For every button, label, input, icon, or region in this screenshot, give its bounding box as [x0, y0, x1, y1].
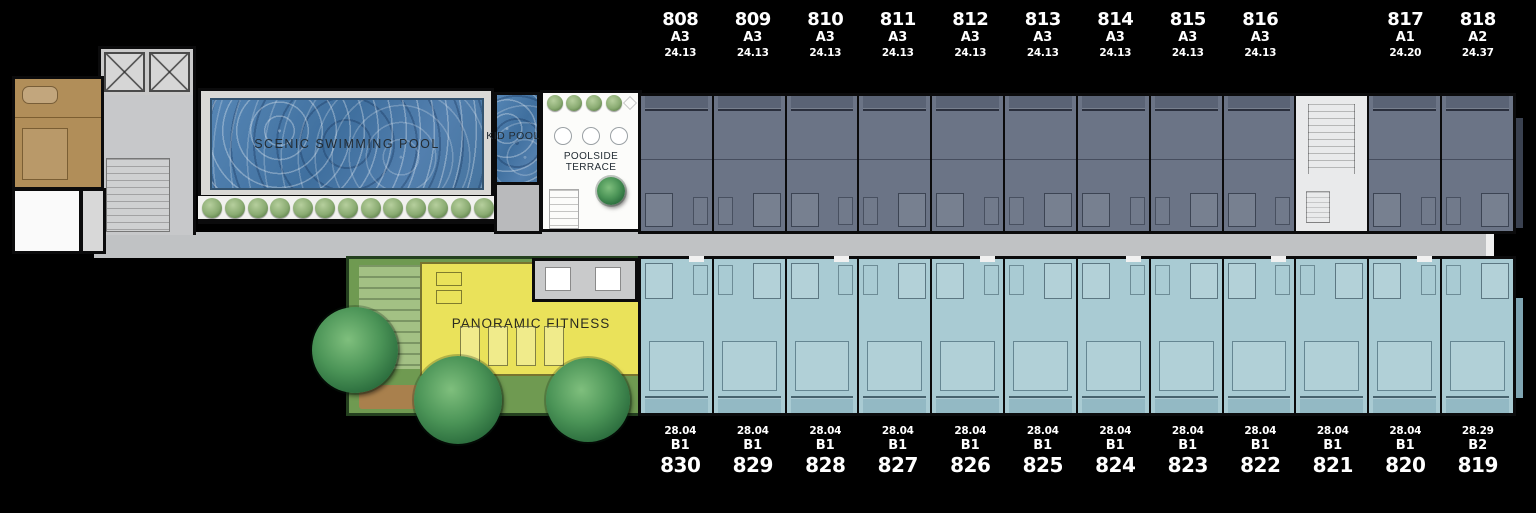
unit-number: 820 [1385, 454, 1425, 476]
shaft-void [12, 188, 82, 254]
lounge-chair-icon [623, 96, 637, 110]
unit-number: 823 [1168, 454, 1208, 476]
unit-number: 830 [660, 454, 700, 476]
unit-type: A3 [961, 30, 980, 46]
unit-number: 810 [807, 10, 843, 30]
unit-813[interactable] [1005, 96, 1076, 231]
unit-type: B1 [1178, 438, 1197, 454]
unit-label-809: 809A324.13 [717, 10, 790, 74]
shrub-icon [315, 198, 335, 218]
door [1126, 256, 1141, 262]
unit-number: 819 [1458, 454, 1498, 476]
bed-icon [22, 128, 68, 180]
unit-824[interactable] [1078, 259, 1149, 413]
bed-icon [1159, 341, 1214, 391]
unit-area: 28.04 [1027, 424, 1059, 438]
unit-label-822: 28.04B1822 [1224, 424, 1297, 486]
balcony [791, 96, 854, 111]
terrace-tables [549, 127, 633, 145]
unit-label-811: 811A324.13 [862, 10, 935, 74]
unit-811[interactable] [859, 96, 930, 231]
unit-814[interactable] [1078, 96, 1149, 231]
wall-line [641, 159, 712, 160]
balcony [1155, 396, 1218, 413]
balcony [1009, 96, 1072, 111]
stair-core [1296, 96, 1367, 231]
unit-number: 821 [1313, 454, 1353, 476]
unit-area: 28.04 [882, 424, 914, 438]
wall-line [932, 159, 1003, 160]
unit-area: 24.13 [664, 46, 696, 60]
unit-type: A3 [816, 30, 835, 46]
unit-label-815: 815A324.13 [1152, 10, 1225, 74]
service-vestibule [532, 258, 638, 302]
unit-820[interactable] [1369, 259, 1440, 413]
unit-type: A3 [743, 30, 762, 46]
hedge-row [545, 94, 637, 112]
shrub-icon [606, 95, 622, 111]
unit-type: B1 [1396, 438, 1415, 454]
unit-label-824: 28.04B1824 [1079, 424, 1152, 486]
bed-icon [1377, 341, 1432, 391]
unit-labels-bottom: 28.04B1830 28.04B1829 28.04B1828 28.04B1… [644, 424, 1514, 486]
shrub-icon [202, 198, 222, 218]
unit-area: 24.13 [809, 46, 841, 60]
tree-icon [546, 358, 630, 442]
balcony [1373, 96, 1436, 111]
bed-icon [1232, 341, 1287, 391]
unit-815[interactable] [1151, 96, 1222, 231]
unit-label-830: 28.04B1830 [644, 424, 717, 486]
treadmill-icon [544, 326, 564, 366]
tree-icon [414, 356, 502, 444]
unit-type: B1 [1106, 438, 1125, 454]
unit-type: B1 [1033, 438, 1052, 454]
shrub-icon [293, 198, 313, 218]
unit-area: 24.13 [1027, 46, 1059, 60]
unit-828[interactable] [787, 259, 858, 413]
unit-label-814: 814A324.13 [1079, 10, 1152, 74]
shrub-icon [225, 198, 245, 218]
balcony [936, 396, 999, 413]
exercise-bike-icon [436, 272, 462, 286]
unit-row-top [638, 93, 1516, 234]
unit-number: 816 [1242, 10, 1278, 30]
door [980, 256, 995, 262]
table-icon [554, 127, 572, 145]
bed-icon [722, 341, 777, 391]
unit-area: 24.13 [954, 46, 986, 60]
unit-area: 24.13 [737, 46, 769, 60]
balcony [791, 396, 854, 413]
unit-label-817: 817A124.20 [1369, 10, 1442, 74]
unit-type: A3 [1251, 30, 1270, 46]
unit-type: B1 [1251, 438, 1270, 454]
bed-icon [1304, 341, 1359, 391]
balcony [1446, 96, 1509, 111]
unit-type: A2 [1468, 30, 1487, 46]
door [1417, 256, 1432, 262]
unit-number: 811 [880, 10, 916, 30]
wall-line [787, 159, 858, 160]
table-icon [610, 127, 628, 145]
unit-type: B1 [1323, 438, 1342, 454]
elevator-shaft-icon [104, 52, 145, 92]
unit-817[interactable] [1369, 96, 1440, 231]
unit-830[interactable] [641, 259, 712, 413]
unit-number: 813 [1025, 10, 1061, 30]
unit-area: 28.04 [809, 424, 841, 438]
elevator-shaft-icon [149, 52, 190, 92]
wall-line [1224, 159, 1295, 160]
unit-label-828: 28.04B1828 [789, 424, 862, 486]
balcony [936, 96, 999, 111]
unit-label-813: 813A324.13 [1007, 10, 1080, 74]
unit-area: 28.04 [1317, 424, 1349, 438]
unit-type: A3 [1178, 30, 1197, 46]
unit-label-808: 808A324.13 [644, 10, 717, 74]
unit-816[interactable] [1224, 96, 1295, 231]
wall-line [714, 159, 785, 160]
pool-plant-room [494, 182, 542, 234]
corridor-end-door [1486, 234, 1494, 256]
poolside-terrace: POOLSIDE TERRACE [540, 90, 642, 232]
unit-825[interactable] [1005, 259, 1076, 413]
unit-number: 817 [1387, 10, 1423, 30]
bed-icon [1013, 341, 1068, 391]
door [689, 256, 704, 262]
unit-label-819: 28.29B2819 [1442, 424, 1515, 486]
unit-number: 829 [733, 454, 773, 476]
unit-818[interactable] [1442, 96, 1513, 231]
unit-area: 28.04 [1389, 424, 1421, 438]
unit-823[interactable] [1151, 259, 1222, 413]
unit-819[interactable] [1442, 259, 1513, 413]
restroom-pod [545, 267, 571, 291]
balcony [1082, 396, 1145, 413]
swimming-pool: SCENIC SWIMMING POOL [210, 98, 484, 190]
unit-label-821: 28.04B1821 [1297, 424, 1370, 486]
floor-plan-stage: SCENIC SWIMMING POOL KID POOL POOLS [0, 0, 1536, 513]
unit-810[interactable] [787, 96, 858, 231]
unit-label-826: 28.04B1826 [934, 424, 1007, 486]
swimming-pool-label: SCENIC SWIMMING POOL [254, 137, 440, 151]
stair-lobby [106, 158, 170, 232]
wall-line [859, 159, 930, 160]
kid-pool [494, 92, 540, 194]
balcony [718, 396, 781, 413]
unit-area: 28.04 [954, 424, 986, 438]
unit-label-816: 816A324.13 [1224, 10, 1297, 74]
treadmill-icon [516, 326, 536, 366]
wall-line [1151, 159, 1222, 160]
stair-core-spacer [1297, 10, 1370, 74]
unit-type: B1 [888, 438, 907, 454]
wall-line [1005, 159, 1076, 160]
unit-area: 28.04 [1099, 424, 1131, 438]
balcony [1446, 396, 1509, 413]
unit-area: 24.20 [1389, 46, 1421, 60]
shrub-icon [406, 198, 426, 218]
unit-row-bottom [638, 256, 1516, 416]
shrub-icon [451, 198, 471, 218]
bed-icon [1450, 341, 1505, 391]
exercise-bike-icon [436, 290, 462, 304]
shrub-icon [547, 95, 563, 111]
unit-number: 828 [805, 454, 845, 476]
unit-number: 809 [735, 10, 771, 30]
unit-area: 24.37 [1462, 46, 1494, 60]
unit-822[interactable] [1224, 259, 1295, 413]
unit-number: 827 [878, 454, 918, 476]
balcony [645, 396, 708, 413]
unit-type: A3 [1033, 30, 1052, 46]
unit-label-827: 28.04B1827 [862, 424, 935, 486]
balcony [1009, 396, 1072, 413]
wall-line [1442, 159, 1513, 160]
balcony [863, 96, 926, 111]
unit-type: A3 [1106, 30, 1125, 46]
unit-area: 28.04 [1172, 424, 1204, 438]
unit-type: A1 [1396, 30, 1415, 46]
shrub-icon [428, 198, 448, 218]
unit-type: B1 [743, 438, 762, 454]
unit-type: B2 [1468, 438, 1487, 454]
balcony-tab-bottom [1516, 298, 1523, 398]
wall-line [15, 117, 101, 118]
unit-type: B1 [671, 438, 690, 454]
unit-area: 28.04 [664, 424, 696, 438]
unit-type: A3 [671, 30, 690, 46]
door [834, 256, 849, 262]
wall-line [1078, 159, 1149, 160]
unit-labels-top: 808A324.13 809A324.13 810A324.13 811A324… [644, 10, 1514, 74]
bed-icon [867, 341, 922, 391]
unit-area: 24.13 [1244, 46, 1276, 60]
stair-landing [1306, 191, 1330, 223]
unit-number: 814 [1097, 10, 1133, 30]
balcony [1373, 396, 1436, 413]
unit-827[interactable] [859, 259, 930, 413]
balcony [645, 96, 708, 111]
bed-icon [795, 341, 850, 391]
balcony [1228, 396, 1291, 413]
unit-number: 822 [1240, 454, 1280, 476]
door [1271, 256, 1286, 262]
table-icon [582, 127, 600, 145]
unit-label-812: 812A324.13 [934, 10, 1007, 74]
tree-icon [312, 307, 398, 393]
hedge-row [198, 196, 498, 224]
balcony [718, 96, 781, 111]
balcony [863, 396, 926, 413]
restroom-pod [595, 267, 621, 291]
bed-icon [649, 341, 704, 391]
balcony [1300, 396, 1363, 413]
shrub-icon [248, 198, 268, 218]
unit-number: 826 [950, 454, 990, 476]
unit-812[interactable] [932, 96, 1003, 231]
treadmill-icon [488, 326, 508, 366]
shrub-icon [361, 198, 381, 218]
bed-icon [1086, 341, 1141, 391]
shrub-icon [338, 198, 358, 218]
bed-icon [940, 341, 995, 391]
unit-number: 825 [1023, 454, 1063, 476]
unit-label-825: 28.04B1825 [1007, 424, 1080, 486]
shrub-icon [474, 198, 494, 218]
balcony [1155, 96, 1218, 111]
wall-line [1369, 159, 1440, 160]
balcony [1228, 96, 1291, 111]
terrace-steps [549, 189, 579, 229]
stair-flight [1308, 104, 1355, 174]
bathtub-icon [22, 86, 58, 104]
unit-829[interactable] [714, 259, 785, 413]
unit-809[interactable] [714, 96, 785, 231]
elevator-bank [98, 46, 196, 98]
unit-number: 815 [1170, 10, 1206, 30]
large-unit[interactable] [12, 76, 104, 190]
unit-area: 28.04 [737, 424, 769, 438]
unit-808[interactable] [641, 96, 712, 231]
unit-number: 812 [952, 10, 988, 30]
balcony-tab-top [1516, 118, 1523, 228]
unit-label-810: 810A324.13 [789, 10, 862, 74]
shrub-icon [270, 198, 290, 218]
unit-area: 24.13 [882, 46, 914, 60]
unit-area: 28.29 [1462, 424, 1494, 438]
unit-label-818: 818A224.37 [1442, 10, 1515, 74]
unit-number: 808 [662, 10, 698, 30]
unit-label-823: 28.04B1823 [1152, 424, 1225, 486]
unit-number: 818 [1460, 10, 1496, 30]
shrub-icon [383, 198, 403, 218]
poolside-terrace-label: POOLSIDE TERRACE [543, 151, 639, 173]
unit-type: A3 [888, 30, 907, 46]
unit-area: 28.04 [1244, 424, 1276, 438]
unit-type: B1 [816, 438, 835, 454]
stair-west [80, 188, 106, 254]
unit-label-820: 28.04B1820 [1369, 424, 1442, 486]
balcony [1082, 96, 1145, 111]
unit-area: 24.13 [1172, 46, 1204, 60]
kid-pool-label: KID POOL [478, 130, 548, 142]
tree-icon [597, 177, 625, 205]
corridor [94, 232, 1494, 258]
unit-area: 24.13 [1099, 46, 1131, 60]
unit-number: 824 [1095, 454, 1135, 476]
unit-826[interactable] [932, 259, 1003, 413]
unit-821[interactable] [1296, 259, 1367, 413]
unit-type: B1 [961, 438, 980, 454]
shrub-icon [586, 95, 602, 111]
shrub-icon [566, 95, 582, 111]
unit-label-829: 28.04B1829 [717, 424, 790, 486]
